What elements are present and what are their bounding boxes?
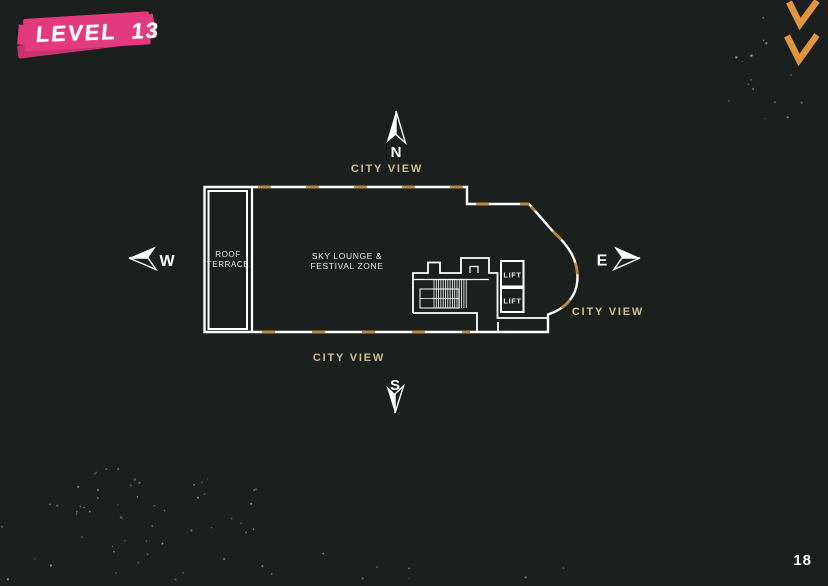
zone-label-line1: SKY LOUNGE &	[312, 251, 382, 261]
south-arrow-icon	[387, 386, 404, 413]
roof-terrace-label-line1: ROOF	[215, 250, 241, 259]
lift-shaft-upper	[501, 261, 524, 287]
page: LIFT LIFT N CITY VIEW S CITY VIEW W	[0, 0, 828, 586]
lift-upper-label: LIFT	[503, 271, 521, 280]
city-view-top-label: CITY VIEW	[351, 163, 423, 175]
roof-terrace-room	[209, 191, 248, 329]
compass-east-label: E	[597, 253, 608, 270]
lift-shaft-lower	[501, 288, 524, 312]
roof-terrace-label-line2: TERRACE	[207, 260, 249, 269]
compass-west-label: W	[159, 253, 175, 270]
north-arrow-icon	[387, 111, 406, 143]
stair-hatch	[434, 280, 466, 308]
east-arrow-icon	[614, 247, 640, 270]
compass-south-label: S	[390, 377, 400, 394]
floor-plan: LIFT LIFT N CITY VIEW S CITY VIEW W	[0, 0, 828, 586]
lift-lower-label: LIFT	[503, 297, 521, 306]
page-number: 18	[793, 552, 812, 569]
window-dashes	[256, 187, 578, 332]
west-arrow-icon	[129, 247, 156, 270]
building-outline	[205, 187, 578, 332]
stair-core-outline	[413, 258, 548, 318]
compass-north-label: N	[391, 144, 402, 161]
dot-texture	[0, 0, 828, 586]
level-title-badge: LEVEL 13	[21, 10, 158, 59]
stair-notch-inner	[470, 267, 478, 274]
city-view-bottom-label: CITY VIEW	[313, 352, 385, 364]
stair-run-outline	[420, 289, 459, 308]
stair-core-base	[413, 313, 498, 331]
chevron-marks-icon	[770, 0, 828, 69]
city-view-right-label: CITY VIEW	[572, 306, 644, 318]
zone-label-line2: FESTIVAL ZONE	[311, 261, 384, 271]
page-title: LEVEL 13	[35, 18, 161, 48]
